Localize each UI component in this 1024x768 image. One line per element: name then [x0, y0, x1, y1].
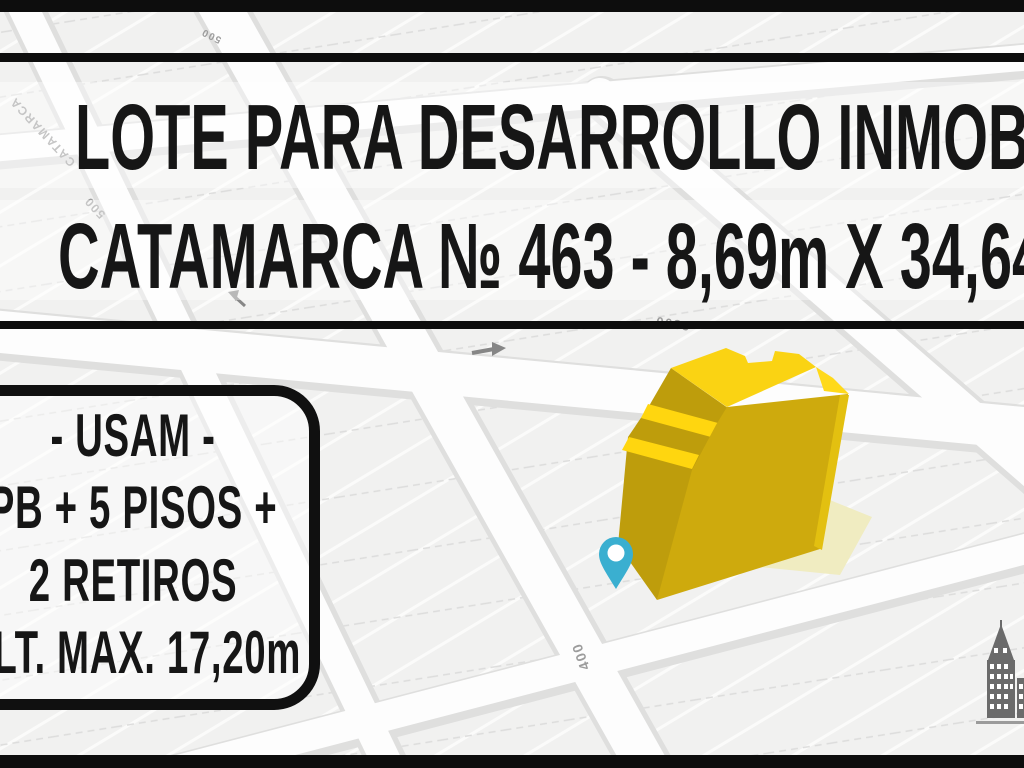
zoning-info-box: - USAM - PB + 5 PISOS + 2 RETIROS ALT. M…	[0, 385, 320, 710]
zoning-floors: PB + 5 PISOS +	[0, 476, 277, 540]
headline-title: LOTE PARA DESARROLLO INMOBILIARIO	[75, 87, 1024, 187]
top-frame-bar	[0, 0, 1024, 12]
separator-bar	[0, 321, 1024, 329]
zoning-setbacks: 2 RETIROS	[29, 549, 237, 613]
upper-rule-bar	[0, 53, 1024, 62]
city-building-icon	[966, 618, 1024, 728]
headline-address: CATAMARCA № 463 - 8,69m X 34,64m	[58, 206, 1024, 306]
zoning-code: - USAM -	[50, 404, 215, 468]
bottom-frame-bar	[0, 755, 1024, 768]
flyer-canvas: CATAMARCA 500 500 2800 400	[0, 0, 1024, 768]
zoning-max-height: ALT. MAX. 17,20m	[0, 621, 301, 685]
logo-underline	[976, 721, 1024, 724]
